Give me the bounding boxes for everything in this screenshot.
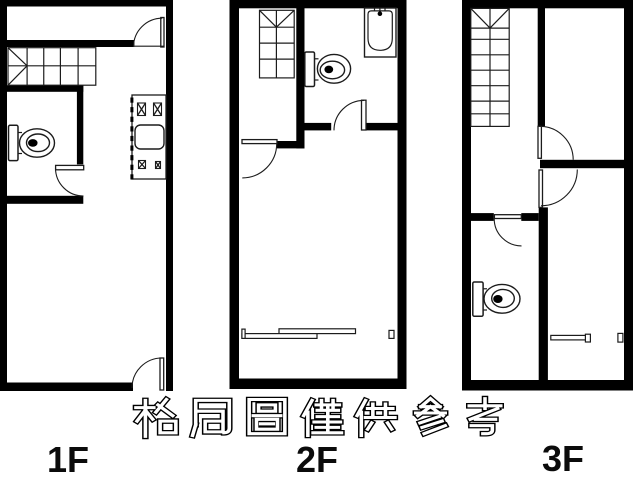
svg-text:2F: 2F (296, 439, 338, 480)
svg-text:3F: 3F (542, 438, 584, 479)
svg-text:1F: 1F (47, 439, 89, 480)
